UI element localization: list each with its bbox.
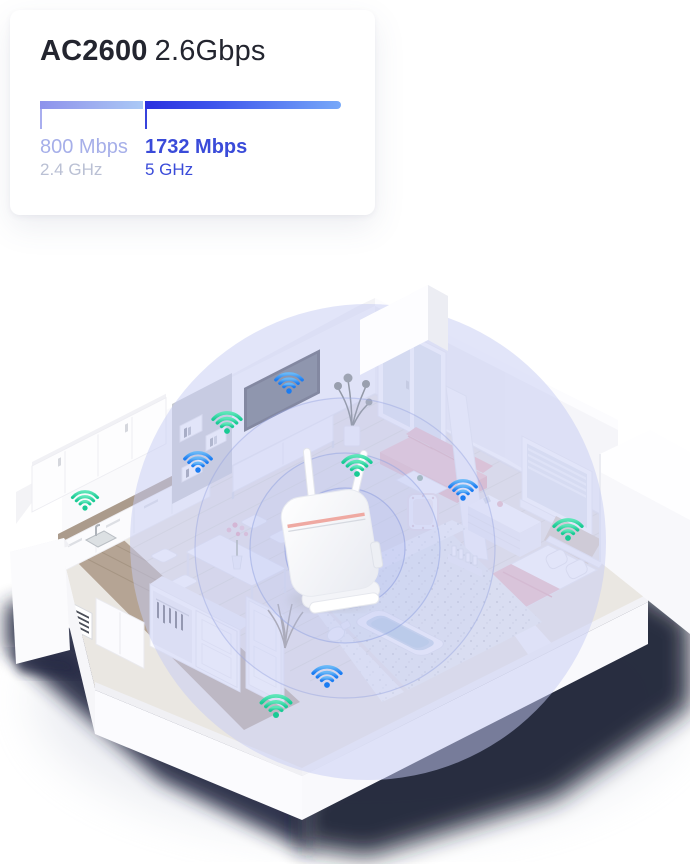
card-title: AC26002.6Gbps <box>40 36 375 68</box>
band-freq: 2.4 GHz <box>40 159 128 182</box>
band-label-2-4ghz: 800 Mbps 2.4 GHz <box>40 135 128 182</box>
total-speed: 2.6Gbps <box>155 35 266 67</box>
band-bar-2-4ghz <box>40 101 143 109</box>
router-body <box>278 487 381 600</box>
model-name: AC2600 <box>40 35 148 67</box>
bar-ticks <box>40 109 375 131</box>
tick-5ghz <box>145 109 147 129</box>
spec-card: AC26002.6Gbps 800 Mbps 2.4 GHz 1732 Mbps… <box>10 10 375 215</box>
band-label-5ghz: 1732 Mbps 5 GHz <box>145 135 247 182</box>
speed-bars <box>40 101 375 109</box>
tick-2-4ghz <box>40 109 42 129</box>
band-labels: 800 Mbps 2.4 GHz 1732 Mbps 5 GHz <box>40 135 375 195</box>
band-speed: 1732 Mbps <box>145 135 247 159</box>
coverage-scene <box>0 230 690 864</box>
band-speed: 800 Mbps <box>40 135 128 159</box>
band-bar-5ghz <box>145 101 341 109</box>
left-exterior-slab <box>10 538 70 664</box>
apartment-illustration <box>0 230 690 864</box>
band-freq: 5 GHz <box>145 159 247 182</box>
